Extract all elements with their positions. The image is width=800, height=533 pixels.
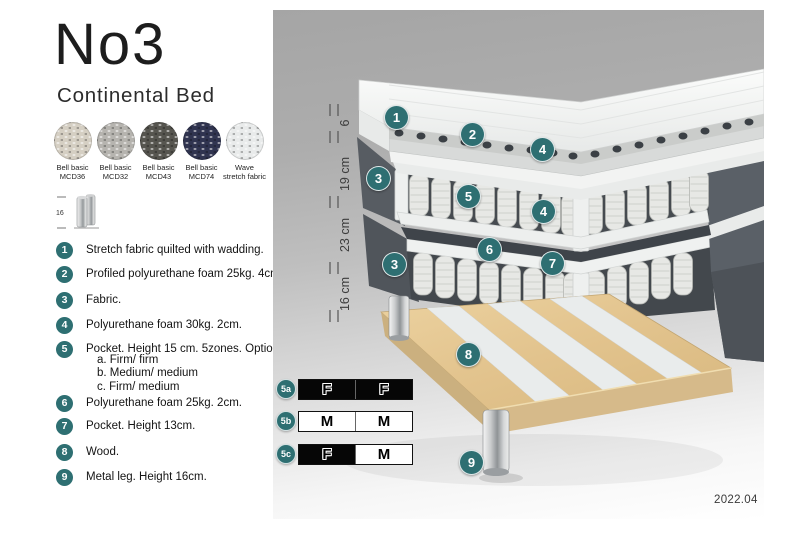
legend-item-text: Stretch fabric quilted with wadding. xyxy=(86,244,264,256)
firmness-cell: M xyxy=(355,445,412,464)
fabric-swatch-label: Wavestretch fabric xyxy=(223,163,266,182)
fabric-swatch-icon xyxy=(54,122,92,160)
legend-item-6: 6 Polyurethane foam 25kg. 2cm. xyxy=(56,394,242,412)
fabric-swatch-icon xyxy=(226,122,264,160)
fabric-swatch: Wavestretch fabric xyxy=(223,122,266,182)
firmness-cell: F xyxy=(299,380,355,399)
fabric-swatch-label: Bell basicMCD32 xyxy=(94,163,137,182)
fabric-swatch-row: Bell basicMCD36 Bell basicMCD32 Bell bas… xyxy=(51,122,266,182)
fabric-swatch: Bell basicMCD36 xyxy=(51,122,94,182)
legend-item-text: Fabric. xyxy=(86,294,121,306)
firmness-table-label-5c: 5c xyxy=(276,444,296,464)
legend-item-text: Profiled polyurethane foam 25kg. 4cm. xyxy=(86,268,283,280)
legend-item-5-options: a. Firm/ firm b. Medium/ medium c. Firm/… xyxy=(97,354,198,394)
callout-4-lower: 4 xyxy=(531,199,556,224)
firmness-cell: F xyxy=(299,445,355,464)
version-date: 2022.04 xyxy=(714,494,758,506)
callout-8: 8 xyxy=(456,342,481,367)
callout-1: 1 xyxy=(384,105,409,130)
legend-number-badge: 5 xyxy=(56,341,73,358)
legend-item-text: Wood. xyxy=(86,446,119,458)
callout-9: 9 xyxy=(459,450,484,475)
firmness-table-5b: M M xyxy=(298,411,413,432)
page-subtitle: Continental Bed xyxy=(57,84,215,108)
legend-number-badge: 9 xyxy=(56,469,73,486)
legend-item-2: 2 Profiled polyurethane foam 25kg. 4cm. xyxy=(56,265,283,283)
legend-number-badge: 6 xyxy=(56,395,73,412)
bed-cutaway-diagram: 6 19 cm 23 cm 16 cm 1 2 4 3 5 4 6 3 7 8 … xyxy=(273,10,764,519)
fabric-swatch-label: Bell basicMCD74 xyxy=(180,163,223,182)
fabric-swatch-label: Bell basicMCD43 xyxy=(137,163,180,182)
dimension-label-leg: 16 cm xyxy=(338,277,352,311)
spec-sheet-page: No3 Continental Bed Bell basicMCD36 Bell… xyxy=(0,0,800,533)
firmness-cell: F xyxy=(355,380,412,399)
bed-cutaway-illustration: 6 19 cm 23 cm 16 cm xyxy=(273,10,764,519)
legend-item-text: Polyurethane foam 25kg. 2cm. xyxy=(86,397,242,409)
fabric-swatch: Bell basicMCD32 xyxy=(94,122,137,182)
legend-item-text: Metal leg. Height 16cm. xyxy=(86,471,207,483)
dimension-label-mattress: 19 cm xyxy=(338,157,352,191)
callout-3-upper: 3 xyxy=(366,166,391,191)
legend-item-7: 7 Pocket. Height 13cm. xyxy=(56,417,195,435)
page-title: No3 xyxy=(54,16,166,74)
firmness-table-label-5b: 5b xyxy=(276,411,296,431)
dimension-label-box: 23 cm xyxy=(338,218,352,252)
legend-number-badge: 8 xyxy=(56,444,73,461)
fabric-swatch-icon xyxy=(97,122,135,160)
callout-5: 5 xyxy=(456,184,481,209)
firmness-table-5a: F F xyxy=(298,379,413,400)
callout-7: 7 xyxy=(540,251,565,276)
fabric-swatch: Bell basicMCD74 xyxy=(180,122,223,182)
firmness-table-5c: F M xyxy=(298,444,413,465)
fabric-swatch-label: Bell basicMCD36 xyxy=(51,163,94,182)
firmness-table-label-5a: 5a xyxy=(276,379,296,399)
firmness-cell: M xyxy=(355,412,412,431)
legend-number-badge: 3 xyxy=(56,292,73,309)
firmness-cell: M xyxy=(299,412,355,431)
legend-number-badge: 2 xyxy=(56,266,73,283)
metal-leg-icon: 16 xyxy=(52,189,106,242)
legend-item-9: 9 Metal leg. Height 16cm. xyxy=(56,468,207,486)
legend-item-3: 3 Fabric. xyxy=(56,291,121,309)
leg-dimension-label: 16 xyxy=(56,210,64,217)
legend-item-1: 1 Stretch fabric quilted with wadding. xyxy=(56,241,264,259)
option-a: a. Firm/ firm xyxy=(97,354,198,367)
dimension-ticks xyxy=(330,104,338,322)
legend-item-text: Polyurethane foam 30kg. 2cm. xyxy=(86,319,242,331)
dimension-label-topper: 6 xyxy=(338,119,352,126)
legend-number-badge: 4 xyxy=(56,317,73,334)
legend-item-text: Pocket. Height 13cm. xyxy=(86,420,195,432)
legend-number-badge: 1 xyxy=(56,242,73,259)
legend-item-8: 8 Wood. xyxy=(56,443,119,461)
fabric-swatch-icon xyxy=(140,122,178,160)
legend-item-4: 4 Polyurethane foam 30kg. 2cm. xyxy=(56,316,242,334)
callout-2: 2 xyxy=(460,122,485,147)
fabric-swatch: Bell basicMCD43 xyxy=(137,122,180,182)
callout-4-upper: 4 xyxy=(530,137,555,162)
option-c: c. Firm/ medium xyxy=(97,381,198,394)
callout-3-lower: 3 xyxy=(382,252,407,277)
fabric-swatch-icon xyxy=(183,122,221,160)
callout-6: 6 xyxy=(477,237,502,262)
legend-number-badge: 7 xyxy=(56,418,73,435)
option-b: b. Medium/ medium xyxy=(97,367,198,380)
